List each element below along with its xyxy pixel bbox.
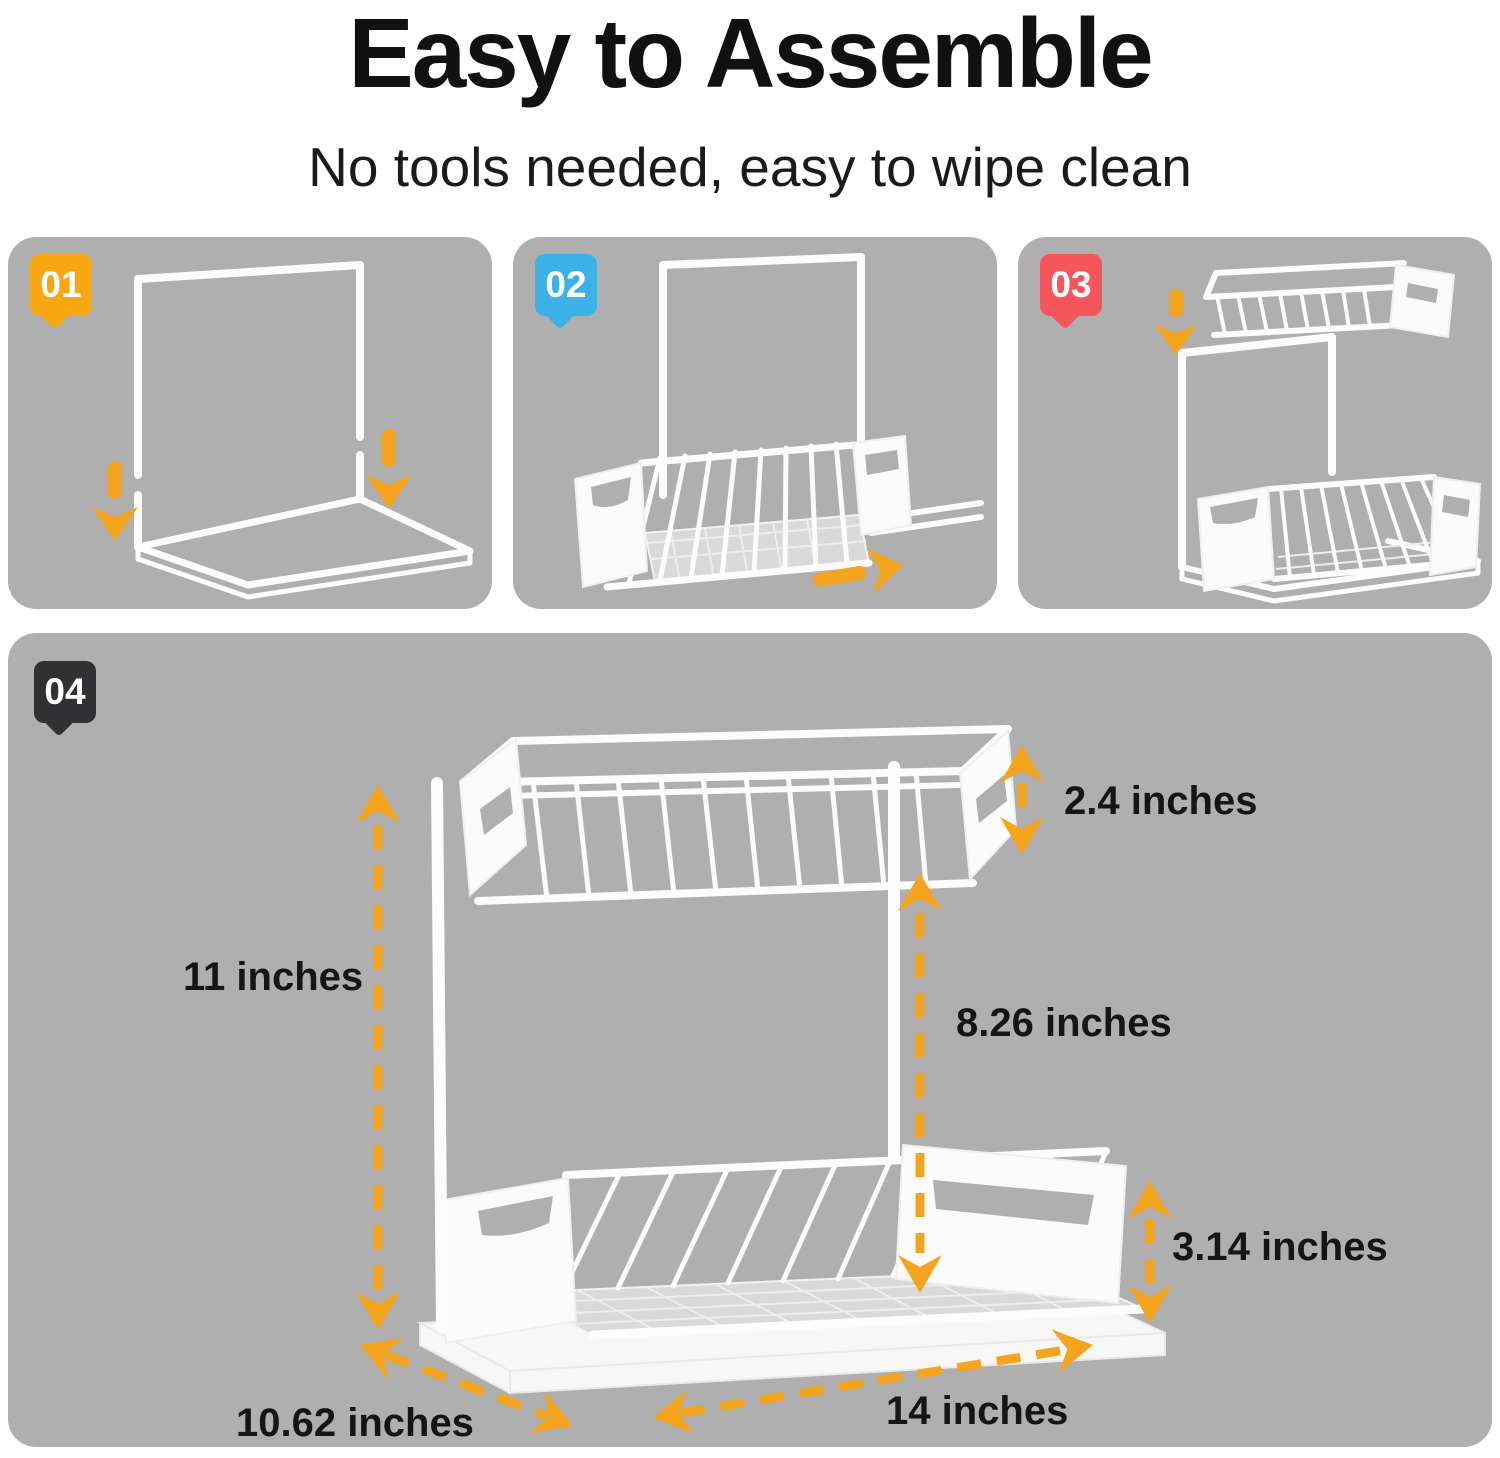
dim-label-depth: 10.62 inches (236, 1401, 474, 1446)
step-panel-1: 01 (8, 237, 492, 609)
step-panel-3: 03 (1018, 237, 1492, 609)
down-arrow-icon (92, 461, 138, 541)
dim-label-overall-height: 11 inches (183, 955, 363, 1000)
step-badge-1: 01 (30, 254, 92, 316)
dim-label-top-basket-height: 2.4 inches (1064, 779, 1257, 824)
dim-label-width: 14 inches (886, 1389, 1068, 1434)
dim-label-bottom-basket-height: 3.14 inches (1172, 1225, 1388, 1270)
step-panel-2: 02 (513, 237, 997, 609)
down-arrow-icon (1155, 289, 1197, 355)
product-dimensions-illustration (8, 633, 1492, 1447)
subtitle: No tools needed, easy to wipe clean (0, 126, 1500, 208)
down-arrow-icon (366, 429, 412, 509)
step-badge-2: 02 (535, 254, 597, 316)
main-title: Easy to Assemble (0, 0, 1500, 118)
infographic-canvas: Easy to Assemble No tools needed, easy t… (0, 0, 1500, 1458)
step-panel-4: 04 (8, 633, 1492, 1447)
dim-label-middle-clearance: 8.26 inches (956, 1001, 1172, 1046)
step-badge-4: 04 (34, 661, 96, 723)
step-badge-3: 03 (1040, 254, 1102, 316)
